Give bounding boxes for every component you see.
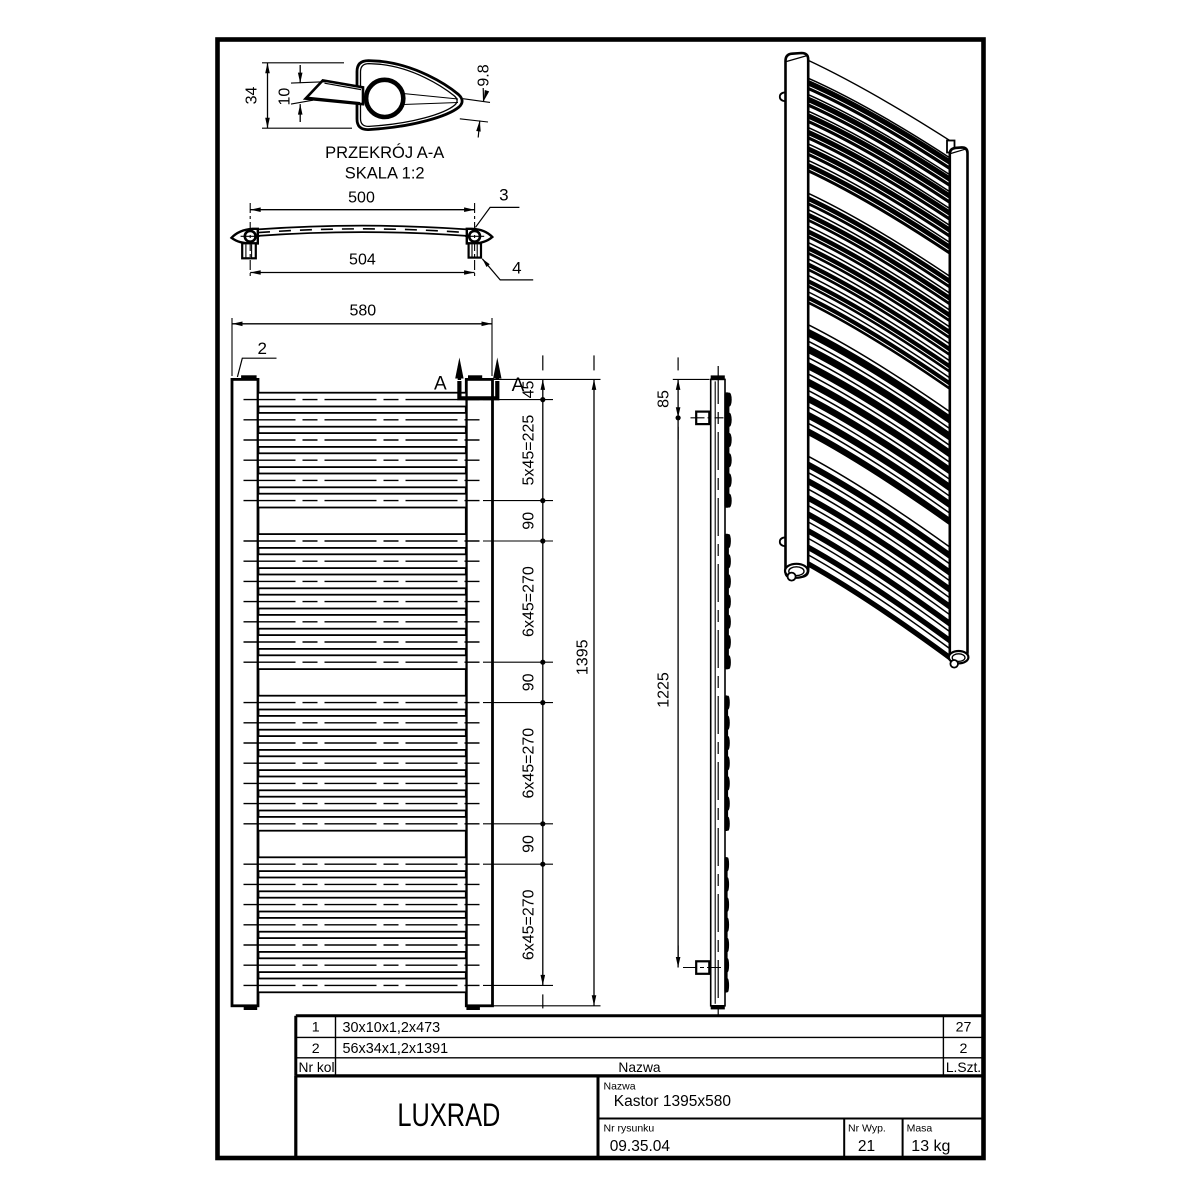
svg-text:13 kg: 13 kg — [911, 1138, 950, 1155]
svg-text:9.8: 9.8 — [476, 64, 493, 86]
svg-text:3: 3 — [499, 186, 508, 205]
svg-text:34: 34 — [244, 87, 261, 105]
svg-text:45: 45 — [521, 381, 538, 399]
svg-text:30x10x1,2x473: 30x10x1,2x473 — [343, 1020, 441, 1036]
svg-text:Kastor 1395x580: Kastor 1395x580 — [614, 1093, 732, 1110]
svg-text:21: 21 — [858, 1138, 875, 1155]
svg-text:L.Szt.: L.Szt. — [946, 1060, 981, 1075]
svg-text:09.35.04: 09.35.04 — [610, 1138, 671, 1155]
svg-text:10: 10 — [277, 88, 294, 106]
svg-text:580: 580 — [349, 303, 376, 320]
svg-text:6x45=270: 6x45=270 — [521, 728, 538, 799]
svg-text:504: 504 — [349, 252, 376, 269]
svg-text:90: 90 — [521, 835, 538, 853]
svg-text:Nazwa: Nazwa — [618, 1060, 660, 1075]
svg-text:SKALA 1:2: SKALA 1:2 — [345, 165, 425, 183]
svg-text:2: 2 — [960, 1041, 968, 1057]
svg-text:Masa: Masa — [907, 1123, 933, 1135]
svg-text:90: 90 — [521, 673, 538, 691]
svg-text:Nr rysunku: Nr rysunku — [604, 1123, 655, 1135]
svg-text:85: 85 — [656, 390, 673, 408]
svg-text:56x34x1,2x1391: 56x34x1,2x1391 — [343, 1041, 449, 1057]
svg-text:90: 90 — [521, 512, 538, 530]
svg-text:1395: 1395 — [575, 639, 592, 675]
svg-text:2: 2 — [312, 1041, 320, 1057]
svg-text:4: 4 — [512, 259, 521, 278]
svg-text:Nr kol: Nr kol — [298, 1060, 334, 1075]
svg-text:27: 27 — [956, 1020, 972, 1036]
svg-text:Nazwa: Nazwa — [604, 1081, 636, 1093]
svg-text:Nr Wyp.: Nr Wyp. — [848, 1123, 886, 1135]
svg-text:PRZEKRÓJ A-A: PRZEKRÓJ A-A — [325, 143, 444, 162]
svg-text:6x45=270: 6x45=270 — [521, 889, 538, 960]
svg-text:6x45=270: 6x45=270 — [521, 566, 538, 637]
svg-text:A: A — [434, 374, 447, 395]
svg-text:1225: 1225 — [656, 672, 673, 708]
svg-text:500: 500 — [348, 190, 375, 207]
svg-text:2: 2 — [257, 339, 266, 358]
svg-text:5x45=225: 5x45=225 — [521, 415, 538, 486]
svg-text:LUXRAD: LUXRAD — [397, 1097, 500, 1133]
svg-text:1: 1 — [312, 1020, 320, 1036]
